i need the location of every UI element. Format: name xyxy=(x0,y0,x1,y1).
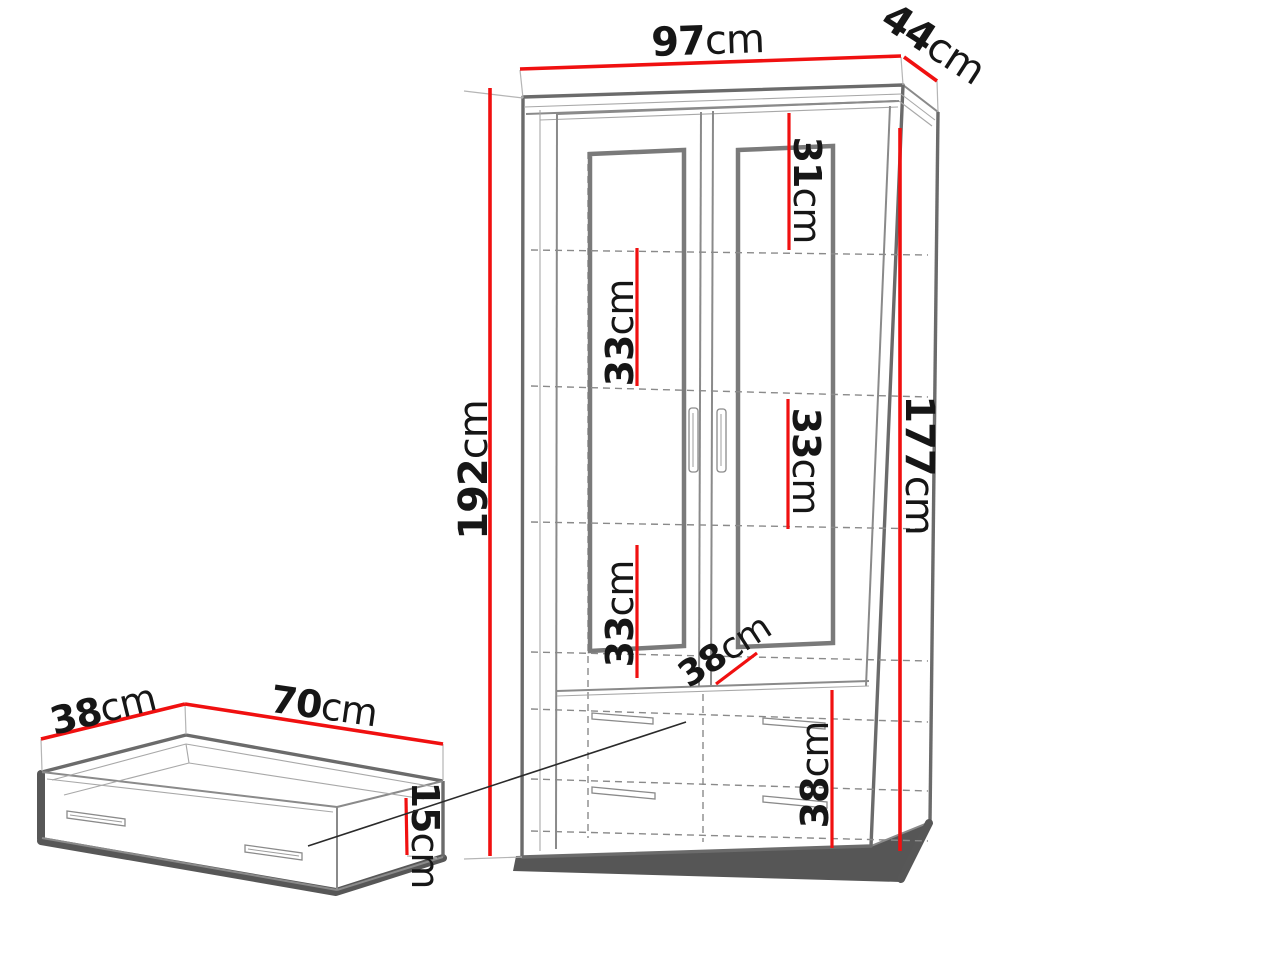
ext-drawer-depth-front xyxy=(41,739,42,771)
dim-label-interior-height: 177cm xyxy=(896,395,942,534)
dim-label-shelf-4: 33cm xyxy=(598,561,642,668)
ext-height-bottom xyxy=(464,857,522,859)
left-door-edge xyxy=(556,112,557,849)
dim-label-cabinet-width: 97cm xyxy=(650,16,764,66)
ext-width-left xyxy=(520,70,523,98)
ext-drawer-back-corner xyxy=(185,704,186,734)
dim-label-shelf-2: 33cm xyxy=(598,280,642,387)
dim-label-drawer-section: 38cm xyxy=(793,722,837,829)
cabinet-drawing xyxy=(513,85,938,882)
diagram-canvas: 97cm 44cm 192cm 177cm 31cm 33cm xyxy=(0,0,1280,960)
dim-label-top-section: 31cm xyxy=(785,137,829,244)
ext-height-top xyxy=(464,91,523,98)
furniture-dimension-diagram: 97cm 44cm 192cm 177cm 31cm 33cm xyxy=(0,0,1280,960)
dim-label-shelf-3: 33cm xyxy=(784,408,828,515)
ext-width-right xyxy=(901,57,903,85)
right-door-handle xyxy=(717,409,726,472)
left-door-handle xyxy=(689,408,698,472)
drawer-drawing xyxy=(41,735,443,892)
dim-label-drawer-depth: 38cm xyxy=(46,675,160,744)
dim-label-cabinet-height: 192cm xyxy=(451,400,497,539)
dim-label-drawer-height: 15cm xyxy=(403,782,447,889)
dim-label-drawer-width: 70cm xyxy=(268,677,380,735)
ext-depth-right xyxy=(937,81,938,112)
